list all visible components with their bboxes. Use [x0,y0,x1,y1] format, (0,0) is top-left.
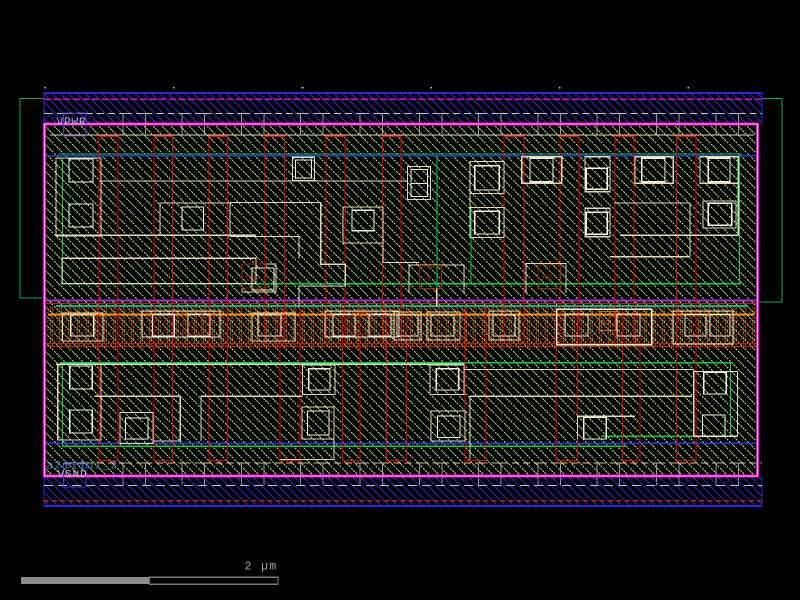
svg-text:VPWR: VPWR [57,117,87,129]
svg-text:C1: C1 [246,274,257,284]
svg-text:VGND: VGND [58,470,88,482]
svg-text:A1: A1 [542,273,553,283]
svg-text:B1: B1 [186,321,196,330]
svg-text:2 µm: 2 µm [245,561,278,574]
svg-text:A2: A2 [601,319,611,328]
svg-text:y: y [426,274,432,284]
